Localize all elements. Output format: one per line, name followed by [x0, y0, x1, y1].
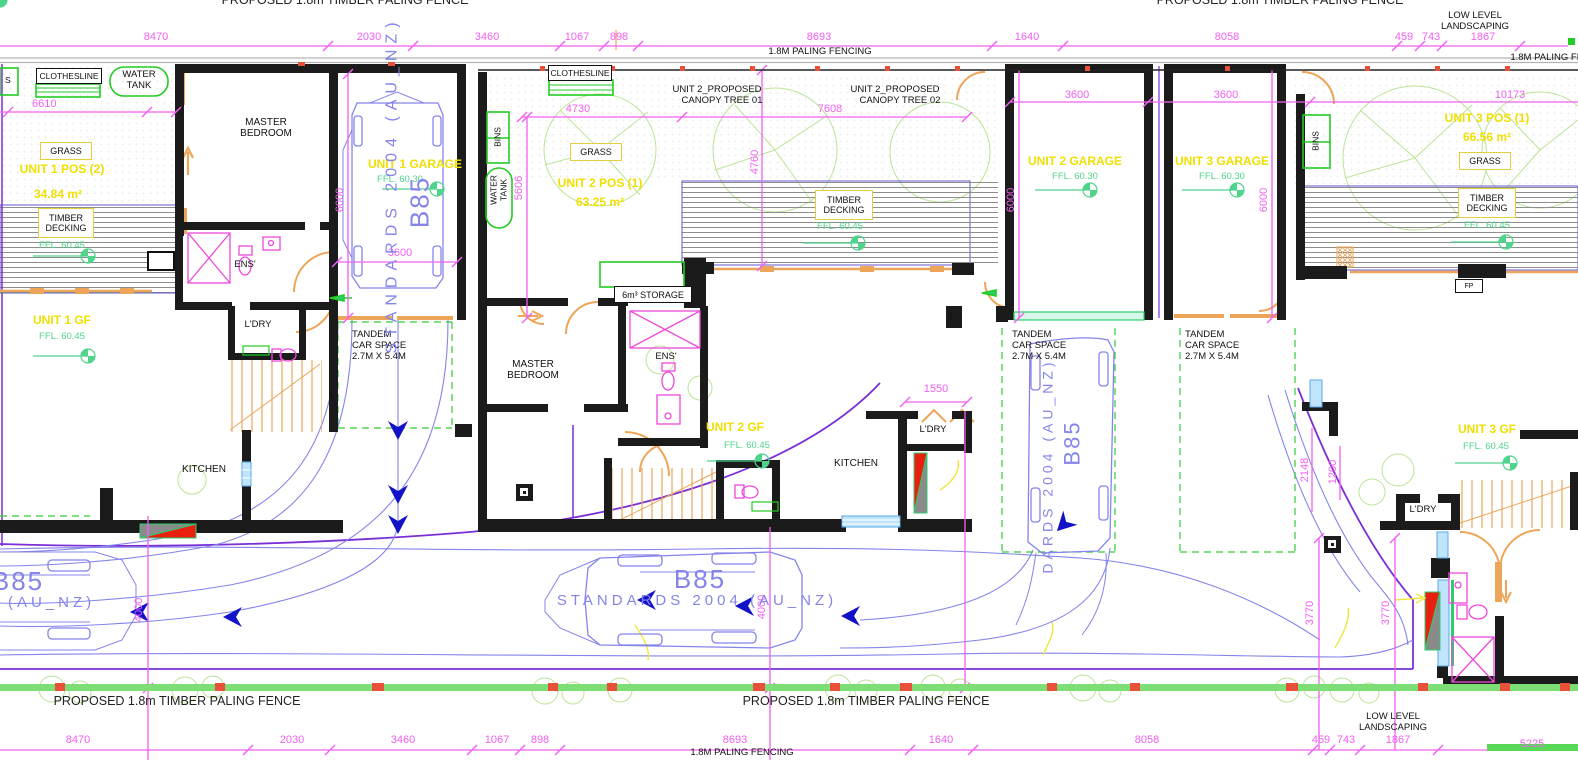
ens-label-2: ENS' — [655, 352, 676, 362]
dim-top-459: 459 — [1395, 32, 1413, 44]
fence-label-top-2: PROPOSED 1.8m TIMBER PALING FENCE — [1157, 0, 1404, 7]
vehicle-1-code-text: B85 — [406, 176, 433, 228]
clothesline-label-1: CLOTHESLINE — [39, 71, 98, 81]
dim-3600-b: 3600 — [1214, 90, 1238, 102]
canopy-tree-1-line2: CANOPY TREE 01 — [682, 96, 763, 106]
canopy-tree-1-line1: UNIT 2_PROPOSED — [672, 85, 761, 95]
unit2-gf-label: UNIT 2 GF — [706, 421, 764, 434]
water-tank-1-line1: WATER — [122, 70, 155, 80]
unit3-pos-area: 66.56 m² — [1463, 131, 1511, 144]
dim-10173: 10173 — [1495, 90, 1526, 102]
plan-linework — [0, 0, 1578, 761]
dim-bottom-8058: 8058 — [1135, 735, 1159, 747]
low-level-landscaping-top-1: LOW LEVEL — [1448, 11, 1502, 21]
paling-fencing-right-label: 1.8M PALING FENCING — [1510, 53, 1578, 63]
canopy-tree-2-line1: UNIT 2_PROPOSED — [850, 85, 939, 95]
grass-box-unit3: GRASS — [1459, 152, 1511, 170]
low-level-landscaping-top-2: LANDSCAPING — [1441, 22, 1509, 32]
floor-plan-canvas: PROPOSED 1.8m TIMBER PALING FENCE PROPOS… — [0, 0, 1578, 761]
dim-6000-unit1: 6000 — [335, 188, 347, 212]
fp-label-2: FP — [950, 312, 957, 320]
dim-7608: 7608 — [818, 104, 842, 116]
unit3-garage-ffl: FFL. 60.30 — [1199, 172, 1245, 182]
dim-bottom-3460: 3460 — [391, 735, 415, 747]
unit2-gf-ffl: FFL. 60.45 — [724, 441, 770, 451]
dim-top-2030: 2030 — [357, 32, 381, 44]
doors-stairs — [0, 30, 1578, 602]
grass-label-1: GRASS — [50, 146, 82, 156]
unit2-garage-label: UNIT 2 GARAGE — [1028, 155, 1122, 168]
timber-label-3b: DECKING — [1466, 203, 1507, 213]
dim-1550: 1550 — [924, 384, 948, 396]
dim-top-8693: 8693 — [807, 32, 831, 44]
timber-decking-box-unit3: TIMBERDECKING — [1458, 188, 1516, 218]
dim-top-8058: 8058 — [1215, 32, 1239, 44]
dim-5606: 5606 — [514, 176, 526, 200]
dim-top-1640: 1640 — [1015, 32, 1039, 44]
dim-bottom-2030: 2030 — [280, 735, 304, 747]
fence-label-top-1: PROPOSED 1.8m TIMBER PALING FENCE — [222, 0, 469, 7]
fp-box-3: FP — [1455, 279, 1483, 293]
dim-top-3460: 3460 — [475, 32, 499, 44]
master-bedroom-2-line1: MASTER — [512, 360, 554, 371]
timber-label-2b: DECKING — [823, 205, 864, 215]
dim-bottom-1867: 1867 — [1386, 735, 1410, 747]
storage-box: 6m³ STORAGE — [614, 286, 692, 303]
bins-label-2: BINS — [494, 127, 503, 147]
dim-top-1067: 1067 — [565, 32, 589, 44]
vehicle-3-code-text: B85 — [0, 568, 44, 595]
water-tank-2-line1: WATER — [490, 175, 499, 205]
dim-4000-a: 4000 — [134, 598, 146, 622]
ldry-label-3: L'DRY — [1410, 505, 1437, 515]
dim-6000-unit2: 6000 — [1006, 188, 1018, 212]
bins-partial-label: S — [5, 76, 11, 85]
dim-3770-b: 3770 — [1381, 601, 1393, 625]
water-tank-1-line2: TANK — [127, 81, 152, 91]
dim-6000-unit3: 6000 — [1259, 188, 1271, 212]
low-level-landscaping-bottom-1: LOW LEVEL — [1366, 712, 1420, 722]
vehicle-2-standard-text: STANDARDS 2004 (AU_NZ) — [557, 593, 837, 609]
unit1-deck-ffl: FFL. 60.45 — [39, 241, 85, 251]
up-label-1: UP — [330, 392, 337, 401]
grass-label-3: GRASS — [1469, 156, 1501, 166]
clothesline-box-2: CLOTHESLINE — [548, 65, 612, 81]
tandem-3-line1: TANDEM — [1185, 330, 1224, 340]
timber-label-2a: TIMBER — [827, 195, 861, 205]
grass-box-unit2: GRASS — [570, 143, 622, 161]
paling-fencing-bottom-label: 1.8M PALING FENCING — [690, 748, 793, 758]
dim-top-8470: 8470 — [144, 32, 168, 44]
ens-label-1: ENS' — [234, 260, 255, 270]
unit1-garage-label: UNIT 1 GARAGE — [368, 158, 462, 171]
vehicle-1-standard-text: STANDARDS 2004 (AU_NZ) — [385, 16, 402, 353]
master-bedroom-2-line2: BEDROOM — [507, 371, 559, 382]
dim-top-1867: 1867 — [1471, 32, 1495, 44]
timber-label-1b: DECKING — [45, 223, 86, 233]
kitchen-label-2: KITCHEN — [834, 459, 878, 470]
dim-top-898: 898 — [610, 32, 628, 44]
unit2-deck-ffl: FFL. 60.45 — [817, 222, 863, 232]
unit3-gf-label: UNIT 3 GF — [1458, 423, 1516, 436]
water-tank-2-line2: TANK — [500, 179, 509, 201]
dim-3770-a: 3770 — [1305, 601, 1317, 625]
unit3-pos-label: UNIT 3 POS (1) — [1445, 112, 1530, 125]
master-bedroom-1-line2: BEDROOM — [240, 129, 292, 140]
vehicle-3-standard-text: STANDARDS 2004 (AU_NZ) — [0, 595, 95, 611]
unit1-gf-label: UNIT 1 GF — [33, 314, 91, 327]
timber-decking-box-unit2: TIMBERDECKING — [815, 190, 873, 220]
vehicle-4-standard-text: DARDS 2004 (AU_NZ) — [1041, 358, 1056, 573]
fp-label-3: FP — [1465, 283, 1474, 290]
paling-fencing-top-label: 1.8M PALING FENCING — [768, 47, 871, 57]
storage-label: 6m³ STORAGE — [622, 290, 684, 300]
dim-bottom-1640: 1640 — [929, 735, 953, 747]
vehicle-4-code-text: B85 — [1060, 420, 1083, 465]
dim-bottom-743: 743 — [1337, 735, 1355, 747]
kitchen-label-1: KITCHEN — [182, 465, 226, 476]
unit1-pos-area: 34.84 m² — [34, 188, 82, 201]
low-level-landscaping-bottom-2: LANDSCAPING — [1359, 723, 1427, 733]
dim-6610: 6610 — [32, 99, 56, 111]
dim-bottom-459: 459 — [1312, 735, 1330, 747]
dim-1200: 1200 — [1328, 460, 1340, 484]
fence-label-bottom-2: PROPOSED 1.8m TIMBER PALING FENCE — [743, 695, 990, 708]
unit3-gf-ffl: FFL. 60.45 — [1463, 442, 1509, 452]
grass-box-unit1: GRASS — [40, 142, 92, 160]
grass-label-2: GRASS — [580, 147, 612, 157]
dim-4730: 4730 — [566, 104, 590, 116]
unit1-pos-label: UNIT 1 POS (2) — [20, 163, 105, 176]
ffl-level-icons — [0, 0, 7, 7]
canopy-tree-2-line2: CANOPY TREE 02 — [860, 96, 941, 106]
timber-label-1a: TIMBER — [49, 213, 83, 223]
dim-bottom-8693: 8693 — [723, 735, 747, 747]
dim-bottom-1067: 1067 — [485, 735, 509, 747]
clothesline-label-2: CLOTHESLINE — [550, 68, 609, 78]
ldry-label-2: L'DRY — [920, 425, 947, 435]
unit2-pos-label: UNIT 2 POS (1) — [558, 177, 643, 190]
tandem-3-line2: CAR SPACE — [1185, 341, 1239, 351]
timber-decking-box-unit1: TIMBERDECKING — [38, 208, 94, 238]
tandem-2-line2: CAR SPACE — [1012, 341, 1066, 351]
window-icons — [242, 380, 1454, 666]
bins-label-3: BINS — [1312, 131, 1321, 151]
dim-top-743: 743 — [1422, 32, 1440, 44]
unit2-garage-ffl: FFL. 60.30 — [1052, 172, 1098, 182]
unit3-deck-ffl: FFL. 60.45 — [1464, 221, 1510, 231]
clothesline-box-1: CLOTHESLINE — [36, 68, 102, 84]
tandem-3-line3: 2.7M X 5.4M — [1185, 352, 1239, 362]
tandem-2-line1: TANDEM — [1012, 330, 1051, 340]
dim-4760: 4760 — [750, 150, 762, 174]
dim-bottom-5225: 5225 — [1520, 739, 1544, 751]
dim-2148: 2148 — [1300, 458, 1312, 482]
unit1-gf-ffl: FFL. 60.45 — [39, 332, 85, 342]
master-bedroom-1-line1: MASTER — [245, 118, 287, 129]
dim-bottom-8470: 8470 — [66, 735, 90, 747]
dim-3600-a: 3600 — [1065, 90, 1089, 102]
timber-label-3a: TIMBER — [1470, 193, 1504, 203]
ldry-label-1: L'DRY — [245, 320, 272, 330]
unit2-pos-area: 63.25 m² — [576, 196, 624, 209]
dim-bottom-898: 898 — [531, 735, 549, 747]
fence-label-bottom-1: PROPOSED 1.8m TIMBER PALING FENCE — [54, 695, 301, 708]
unit3-garage-label: UNIT 3 GARAGE — [1175, 155, 1269, 168]
vehicle-2-code-text: B85 — [674, 566, 726, 593]
